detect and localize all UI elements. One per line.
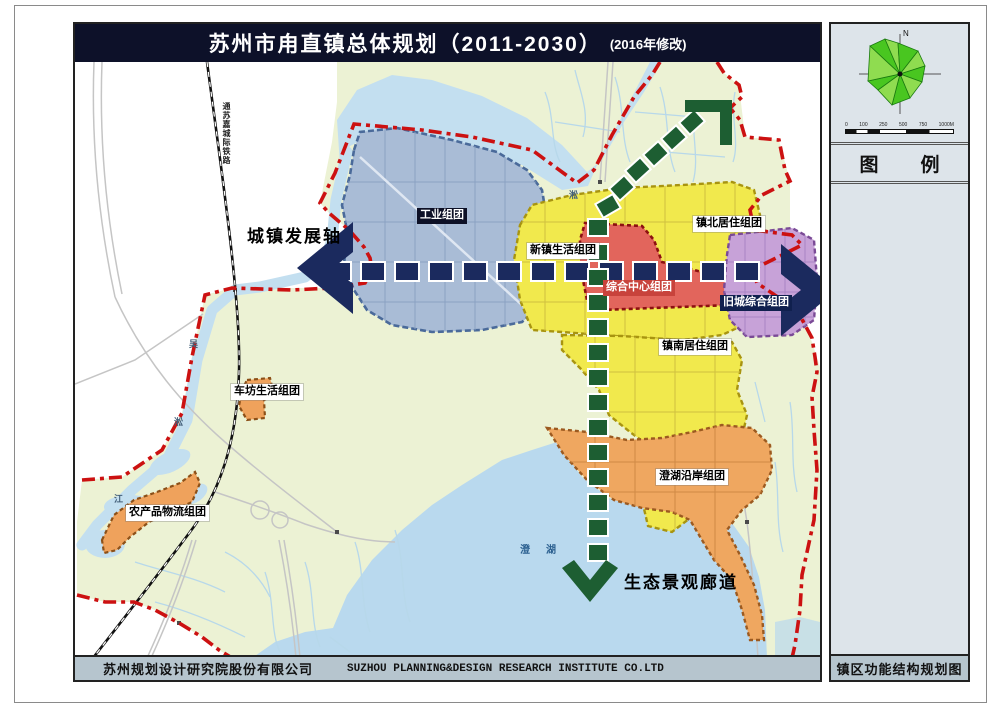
map-frame: 苏州市甪直镇总体规划（2011-2030） (2016年修改) bbox=[73, 22, 822, 682]
scale-tick: 100 bbox=[859, 122, 867, 128]
zone-label-new-town: 新镇生活组团 bbox=[527, 243, 599, 259]
river-label-wu: 吴 bbox=[189, 339, 198, 350]
scale-bar-graphic bbox=[845, 129, 954, 134]
scale-tick: 0 bbox=[845, 122, 848, 128]
map-canvas: 城镇发展轴 生态景观廊道 工业组团 新镇生活组团 综合中心组团 镇北居住组团 旧… bbox=[75, 62, 820, 655]
zone-label-agri-logistics: 农产品物流组团 bbox=[126, 505, 209, 521]
river-label-song-top: 淞 bbox=[569, 190, 578, 201]
scale-tick: 1000M bbox=[939, 122, 954, 128]
compass-rose: N bbox=[831, 24, 968, 116]
zone-label-old-town: 旧城综合组团 bbox=[720, 295, 792, 311]
credit-bar: 苏州规划设计研究院股份有限公司 SUZHOU PLANNING&DESIGN R… bbox=[75, 655, 820, 680]
sidebar: N 0 100 250 500 750 1000M 图 例 镇区功能结构规划图 bbox=[829, 22, 970, 682]
title-bar: 苏州市甪直镇总体规划（2011-2030） (2016年修改) bbox=[75, 24, 820, 62]
scale-tick: 750 bbox=[919, 122, 927, 128]
zone-label-chefang: 车坊生活组团 bbox=[231, 384, 303, 400]
scale-tick: 500 bbox=[899, 122, 907, 128]
credit-chinese: 苏州规划设计研究院股份有限公司 bbox=[103, 659, 313, 678]
zone-label-south-residential: 镇南居住组团 bbox=[659, 339, 731, 355]
zone-label-industrial: 工业组团 bbox=[417, 208, 467, 224]
page-title: 苏州市甪直镇总体规划（2011-2030） bbox=[209, 28, 602, 58]
plan-sheet: 苏州市甪直镇总体规划（2011-2030） (2016年修改) bbox=[0, 0, 1000, 707]
river-label-jiang: 江 bbox=[114, 494, 123, 505]
compass-box: N 0 100 250 500 750 1000M bbox=[831, 24, 968, 145]
page-title-revision: (2016年修改) bbox=[610, 34, 687, 53]
legend-title: 图 例 bbox=[831, 145, 968, 184]
scale-labels: 0 100 250 500 750 1000M bbox=[845, 122, 954, 128]
north-indicator: N bbox=[903, 29, 909, 38]
river-label-song: 淞 bbox=[174, 417, 183, 428]
legend-char-2: 例 bbox=[921, 150, 940, 177]
credit-english: SUZHOU PLANNING&DESIGN RESEARCH INSTITUT… bbox=[347, 663, 664, 675]
lake-label-cheng: 澄 bbox=[520, 545, 530, 558]
map-name-bar: 镇区功能结构规划图 bbox=[831, 654, 968, 680]
map-name-label: 镇区功能结构规划图 bbox=[836, 659, 962, 678]
scale-bar: 0 100 250 500 750 1000M bbox=[845, 122, 954, 134]
zone-label-north-residential: 镇北居住组团 bbox=[693, 216, 765, 232]
zone-label-lakeside: 澄湖沿岸组团 bbox=[656, 469, 728, 485]
scale-tick: 250 bbox=[879, 122, 887, 128]
legend-body bbox=[831, 184, 968, 654]
planning-map-svg bbox=[75, 62, 820, 655]
lake-label-hu: 湖 bbox=[546, 545, 556, 558]
corridor-label: 生态景观廊道 bbox=[624, 572, 738, 593]
legend-char-1: 图 bbox=[859, 150, 878, 177]
axis-label: 城镇发展轴 bbox=[247, 226, 342, 247]
railway-label: 通苏嘉城际铁路 bbox=[221, 102, 231, 165]
zone-label-center: 综合中心组团 bbox=[603, 280, 675, 296]
